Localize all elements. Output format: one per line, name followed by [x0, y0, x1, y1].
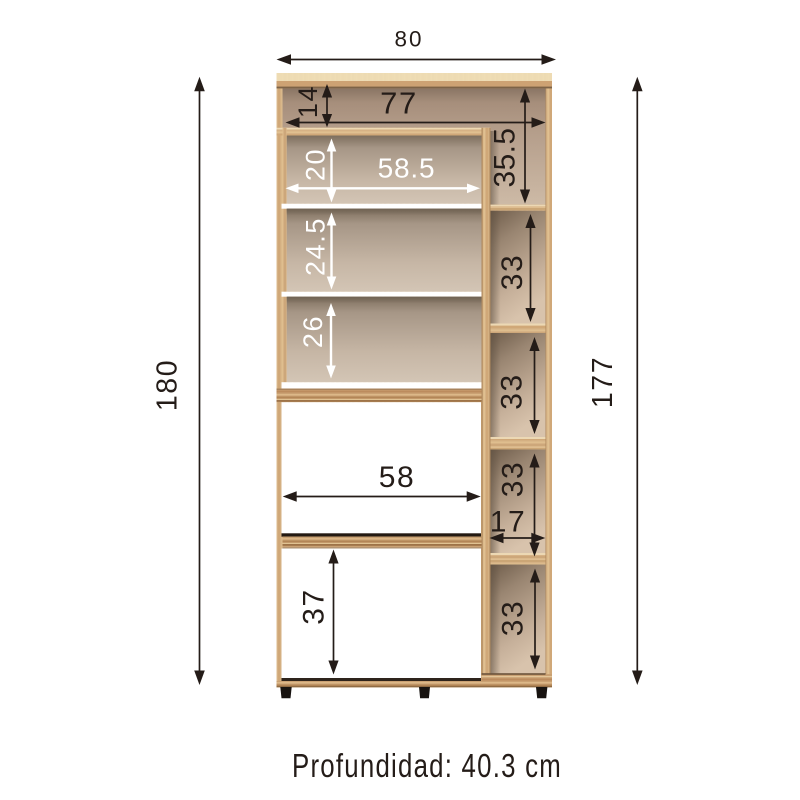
svg-text:14: 14	[293, 85, 323, 118]
svg-text:26: 26	[298, 315, 328, 348]
svg-text:37: 37	[298, 588, 331, 625]
svg-text:33: 33	[496, 373, 529, 410]
svg-text:Profundidad: 40.3 cm: Profundidad: 40.3 cm	[292, 748, 562, 785]
svg-text:33: 33	[497, 600, 530, 637]
svg-text:35.5: 35.5	[489, 128, 522, 188]
svg-text:80: 80	[394, 27, 423, 52]
svg-text:58.5: 58.5	[378, 153, 436, 184]
svg-text:180: 180	[152, 359, 184, 411]
svg-text:24.5: 24.5	[301, 217, 331, 276]
svg-text:33: 33	[496, 254, 529, 291]
svg-text:17: 17	[490, 506, 527, 539]
svg-text:33: 33	[497, 461, 530, 498]
svg-text:77: 77	[380, 86, 418, 121]
svg-text:177: 177	[587, 356, 619, 408]
svg-text:58: 58	[379, 461, 416, 494]
svg-text:20: 20	[301, 148, 331, 181]
